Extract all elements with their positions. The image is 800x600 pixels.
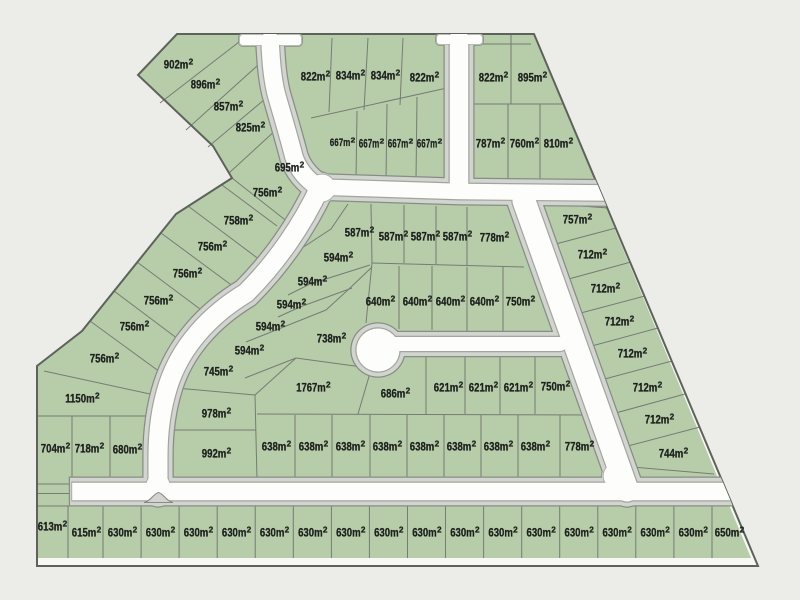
svg-text:756m: 756m [253, 185, 278, 199]
svg-text:613m: 613m [38, 519, 63, 533]
svg-text:2: 2 [703, 525, 708, 534]
svg-text:2: 2 [468, 229, 473, 238]
svg-text:2: 2 [475, 525, 480, 534]
svg-text:587m: 587m [379, 229, 404, 243]
svg-text:638m: 638m [521, 439, 546, 453]
svg-text:2: 2 [588, 212, 593, 221]
svg-text:621m: 621m [504, 380, 529, 394]
svg-text:2: 2 [535, 136, 540, 145]
svg-text:2: 2 [551, 525, 556, 534]
svg-text:756m: 756m [173, 266, 198, 280]
svg-text:2: 2 [531, 294, 536, 303]
svg-text:2: 2 [428, 294, 433, 303]
svg-text:630m: 630m [488, 525, 513, 539]
svg-text:2: 2 [658, 380, 663, 389]
svg-text:2: 2 [380, 136, 385, 145]
svg-text:594m: 594m [324, 250, 349, 264]
svg-text:630m: 630m [222, 525, 247, 539]
svg-text:712m: 712m [633, 380, 658, 394]
svg-text:712m: 712m [645, 412, 670, 426]
svg-text:630m: 630m [336, 525, 361, 539]
svg-text:2: 2 [247, 525, 252, 534]
svg-text:2: 2 [138, 442, 143, 451]
svg-text:778m: 778m [565, 439, 590, 453]
svg-text:2: 2 [404, 229, 409, 238]
svg-text:756m: 756m [198, 239, 223, 253]
svg-text:2: 2 [569, 136, 574, 145]
svg-text:2: 2 [513, 525, 518, 534]
svg-text:822m: 822m [301, 69, 326, 83]
svg-text:712m: 712m [618, 346, 643, 360]
svg-text:640m: 640m [436, 294, 461, 308]
svg-text:2: 2 [324, 439, 329, 448]
svg-text:2: 2 [66, 441, 71, 450]
svg-text:895m: 895m [518, 70, 543, 84]
svg-text:2: 2 [505, 230, 510, 239]
svg-text:2: 2 [229, 364, 234, 373]
svg-text:587m: 587m [411, 229, 436, 243]
svg-text:667m: 667m [388, 136, 409, 150]
svg-text:2: 2 [361, 439, 366, 448]
svg-text:2: 2 [227, 446, 232, 455]
svg-text:2: 2 [627, 525, 632, 534]
svg-text:2: 2 [494, 380, 499, 389]
svg-text:2: 2 [323, 525, 328, 534]
svg-text:638m: 638m [336, 439, 361, 453]
svg-text:2: 2 [409, 136, 414, 145]
svg-text:1150m: 1150m [65, 391, 95, 405]
svg-text:2: 2 [349, 250, 354, 259]
svg-text:630m: 630m [679, 525, 704, 539]
svg-text:2: 2 [326, 380, 331, 389]
svg-text:640m: 640m [366, 294, 391, 308]
svg-text:638m: 638m [373, 439, 398, 453]
svg-text:2: 2 [287, 439, 292, 448]
svg-text:756m: 756m [90, 351, 115, 365]
svg-text:638m: 638m [299, 439, 324, 453]
svg-text:630m: 630m [527, 525, 552, 539]
svg-text:2: 2 [133, 525, 138, 534]
svg-text:2: 2 [396, 68, 401, 77]
svg-text:2: 2 [95, 391, 100, 400]
svg-text:630m: 630m [260, 525, 285, 539]
svg-text:745m: 745m [204, 364, 229, 378]
svg-text:2: 2 [461, 294, 466, 303]
svg-text:704m: 704m [41, 441, 66, 455]
svg-text:2: 2 [361, 68, 366, 77]
svg-text:2: 2 [342, 331, 347, 340]
svg-text:2: 2 [398, 439, 403, 448]
svg-text:992m: 992m [202, 446, 227, 460]
svg-text:2: 2 [566, 379, 571, 388]
svg-text:638m: 638m [447, 439, 472, 453]
svg-text:2: 2 [351, 135, 356, 144]
svg-text:738m: 738m [317, 331, 342, 345]
svg-text:787m: 787m [476, 136, 501, 150]
svg-text:778m: 778m [480, 230, 505, 244]
svg-text:2: 2 [198, 266, 203, 275]
svg-text:594m: 594m [277, 297, 302, 311]
svg-text:2: 2 [370, 225, 375, 234]
svg-text:2: 2 [239, 99, 244, 108]
svg-text:2: 2 [740, 525, 745, 534]
svg-text:718m: 718m [75, 441, 100, 455]
svg-text:2: 2 [472, 439, 477, 448]
svg-text:2: 2 [504, 70, 509, 79]
svg-text:2: 2 [684, 446, 689, 455]
svg-text:650m: 650m [715, 525, 740, 539]
svg-text:594m: 594m [256, 319, 281, 333]
svg-text:630m: 630m [412, 525, 437, 539]
svg-text:621m: 621m [469, 380, 494, 394]
svg-text:667m: 667m [417, 136, 438, 150]
svg-text:834m: 834m [371, 68, 396, 82]
svg-text:750m: 750m [541, 379, 566, 393]
svg-text:2: 2 [501, 136, 506, 145]
svg-text:712m: 712m [578, 247, 603, 261]
svg-text:2: 2 [63, 519, 68, 528]
svg-text:822m: 822m [410, 70, 435, 84]
svg-text:2: 2 [543, 70, 548, 79]
svg-text:2: 2 [249, 213, 254, 222]
svg-text:2: 2 [300, 160, 305, 169]
svg-text:822m: 822m [479, 70, 504, 84]
svg-text:2: 2 [665, 525, 670, 534]
svg-text:2: 2 [169, 293, 174, 302]
svg-text:744m: 744m [659, 446, 684, 460]
svg-text:2: 2 [616, 281, 621, 290]
svg-text:2: 2 [509, 439, 514, 448]
svg-text:2: 2 [302, 297, 307, 306]
svg-text:640m: 640m [470, 294, 495, 308]
svg-text:712m: 712m [591, 281, 616, 295]
svg-text:680m: 680m [113, 442, 138, 456]
svg-text:2: 2 [438, 136, 443, 145]
svg-text:2: 2 [459, 380, 464, 389]
svg-text:2: 2 [643, 346, 648, 355]
svg-text:638m: 638m [262, 439, 287, 453]
svg-text:2: 2 [589, 525, 594, 534]
svg-text:2: 2 [399, 525, 404, 534]
svg-text:757m: 757m [563, 212, 588, 226]
svg-text:978m: 978m [202, 406, 227, 420]
svg-text:2: 2 [223, 239, 228, 248]
svg-text:2: 2 [361, 525, 366, 534]
svg-text:2: 2 [209, 525, 214, 534]
svg-text:2: 2 [590, 439, 595, 448]
svg-text:594m: 594m [298, 274, 323, 288]
svg-text:2: 2 [216, 77, 221, 86]
svg-text:2: 2 [391, 294, 396, 303]
svg-text:2: 2 [436, 229, 441, 238]
svg-text:686m: 686m [381, 386, 406, 400]
svg-text:2: 2 [278, 185, 283, 194]
svg-text:630m: 630m [450, 525, 475, 539]
svg-text:630m: 630m [108, 525, 133, 539]
svg-text:667m: 667m [330, 137, 351, 149]
svg-text:2: 2 [171, 525, 176, 534]
svg-text:621m: 621m [434, 380, 459, 394]
svg-text:587m: 587m [345, 225, 370, 239]
svg-text:2: 2 [115, 351, 120, 360]
svg-text:2: 2 [326, 69, 331, 78]
svg-text:2: 2 [97, 525, 102, 534]
svg-text:2: 2 [529, 380, 534, 389]
svg-text:2: 2 [406, 386, 411, 395]
svg-text:834m: 834m [336, 68, 361, 82]
svg-text:587m: 587m [443, 229, 468, 243]
svg-text:630m: 630m [298, 525, 323, 539]
svg-text:630m: 630m [184, 525, 209, 539]
svg-text:825m: 825m [236, 120, 261, 134]
svg-text:2: 2 [227, 406, 232, 415]
svg-text:2: 2 [260, 343, 265, 352]
svg-text:2: 2 [285, 525, 290, 534]
svg-text:594m: 594m [235, 343, 260, 357]
svg-text:857m: 857m [214, 99, 239, 113]
svg-text:902m: 902m [164, 57, 189, 71]
svg-text:712m: 712m [605, 314, 630, 328]
svg-text:2: 2 [603, 247, 608, 256]
svg-text:640m: 640m [403, 294, 428, 308]
svg-text:2: 2 [435, 70, 440, 79]
svg-text:2: 2 [281, 319, 286, 328]
svg-text:2: 2 [189, 57, 194, 66]
svg-text:615m: 615m [72, 525, 97, 539]
svg-text:667m: 667m [359, 136, 380, 150]
svg-text:695m: 695m [275, 160, 300, 174]
svg-text:2: 2 [546, 439, 551, 448]
svg-text:758m: 758m [224, 213, 249, 227]
svg-text:2: 2 [495, 294, 500, 303]
svg-text:2: 2 [435, 439, 440, 448]
svg-text:760m: 760m [510, 136, 535, 150]
svg-text:2: 2 [145, 319, 150, 328]
svg-text:2: 2 [437, 525, 442, 534]
svg-text:2: 2 [670, 412, 675, 421]
svg-text:630m: 630m [641, 525, 666, 539]
svg-text:2: 2 [100, 441, 105, 450]
svg-text:630m: 630m [565, 525, 590, 539]
svg-text:896m: 896m [191, 77, 216, 91]
svg-text:2: 2 [323, 274, 328, 283]
svg-text:756m: 756m [120, 319, 145, 333]
svg-text:756m: 756m [144, 293, 169, 307]
svg-text:630m: 630m [374, 525, 399, 539]
svg-text:2: 2 [261, 120, 266, 129]
svg-text:810m: 810m [544, 136, 569, 150]
svg-text:1767m: 1767m [296, 380, 326, 394]
svg-text:2: 2 [630, 314, 635, 323]
svg-text:638m: 638m [410, 439, 435, 453]
svg-text:630m: 630m [603, 525, 628, 539]
svg-text:630m: 630m [146, 525, 171, 539]
svg-text:750m: 750m [506, 294, 531, 308]
svg-text:638m: 638m [484, 439, 509, 453]
